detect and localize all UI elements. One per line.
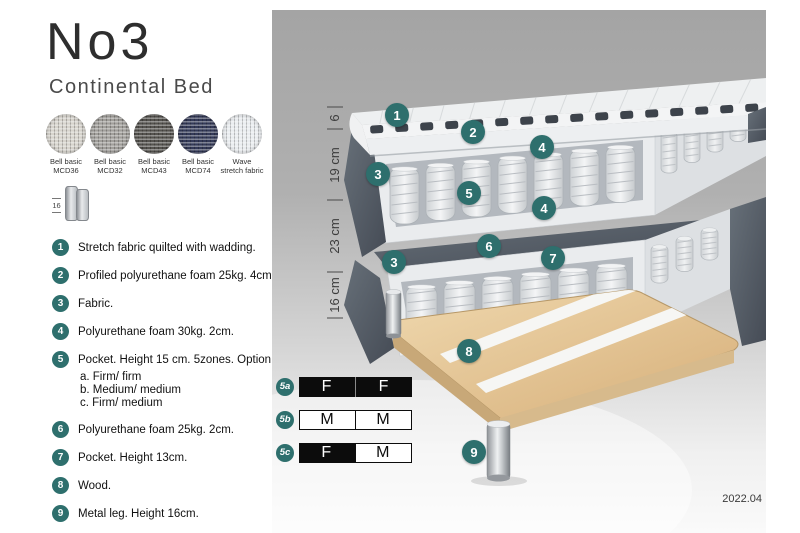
- fabric-swatch-cell: Bell basicMCD43: [132, 114, 176, 175]
- spec-number-badge: 4: [52, 323, 69, 340]
- spec-item-text: Pocket. Height 15 cm. 5zones. Option:: [78, 351, 274, 368]
- firmness-bar: MM: [299, 410, 412, 430]
- leg-dimension-icon: 16: [52, 189, 89, 221]
- spec-item-9: 9Metal leg. Height 16cm.: [52, 505, 290, 522]
- firmness-row-5b: 5bMM: [276, 410, 412, 430]
- spec-list: 1Stretch fabric quilted with wadding.2Pr…: [52, 239, 290, 533]
- firmness-row-5a: 5aFF: [276, 377, 412, 397]
- firmness-cell: M: [356, 410, 412, 430]
- spec-item-text: Fabric.: [78, 295, 113, 312]
- spec-item-8: 8Wood.: [52, 477, 290, 494]
- firmness-bar: FM: [299, 443, 412, 463]
- spec-item-2: 2Profiled polyurethane foam 25kg. 4cm.: [52, 267, 290, 284]
- fabric-swatch-mcd43: [134, 114, 174, 154]
- leg-cylinder-icon: [76, 189, 89, 221]
- fabric-swatch-cell: Bell basicMCD36: [44, 114, 88, 175]
- version-label: 2022.04: [690, 493, 762, 505]
- fabric-swatch-row: Bell basicMCD36Bell basicMCD32Bell basic…: [44, 114, 264, 175]
- spec-number-badge: 2: [52, 267, 69, 284]
- fabric-swatch-mcd74: [178, 114, 218, 154]
- svg-text:16 cm: 16 cm: [327, 277, 342, 312]
- fabric-swatch-mcd36: [46, 114, 86, 154]
- fabric-swatch-cell: Bell basicMCD74: [176, 114, 220, 175]
- callout-8: 8: [457, 339, 481, 363]
- svg-text:6: 6: [327, 114, 342, 121]
- spec-item-4: 4Polyurethane foam 30kg. 2cm.: [52, 323, 290, 340]
- fabric-swatch-label: Wavestretch fabric: [216, 157, 268, 175]
- firmness-badge: 5a: [276, 378, 294, 396]
- metal-leg-left: [386, 290, 401, 339]
- callout-3: 3: [382, 250, 406, 274]
- spec-item-options: a. Firm/ firmb. Medium/ mediumc. Firm/ m…: [80, 371, 290, 410]
- firmness-bar: FF: [299, 377, 412, 397]
- spec-number-badge: 9: [52, 505, 69, 522]
- firmness-cell: F: [299, 443, 355, 463]
- spec-item-text: Pocket. Height 13cm.: [78, 449, 187, 466]
- spec-number-badge: 7: [52, 449, 69, 466]
- firmness-row-5c: 5cFM: [276, 443, 412, 463]
- fabric-swatch-cell: Wavestretch fabric: [220, 114, 264, 175]
- product-title: No3: [46, 12, 153, 72]
- spec-item-text: Stretch fabric quilted with wadding.: [78, 239, 256, 256]
- spec-item-text: Polyurethane foam 25kg. 2cm.: [78, 421, 234, 438]
- spec-item-1: 1Stretch fabric quilted with wadding.: [52, 239, 290, 256]
- callout-4: 4: [532, 196, 556, 220]
- spec-number-badge: 3: [52, 295, 69, 312]
- leg-height-dimension: 16: [52, 196, 61, 215]
- firmness-badge: 5b: [276, 411, 294, 429]
- spec-item-text: Wood.: [78, 477, 111, 494]
- callout-6: 6: [477, 234, 501, 258]
- spec-item-text: Profiled polyurethane foam 25kg. 4cm.: [78, 267, 275, 284]
- fabric-swatch-mcd32: [90, 114, 130, 154]
- spec-item-text: Metal leg. Height 16cm.: [78, 505, 199, 522]
- spec-number-badge: 5: [52, 351, 69, 368]
- spec-item-6: 6Polyurethane foam 25kg. 2cm.: [52, 421, 290, 438]
- product-subtitle: Continental Bed: [49, 76, 214, 99]
- callout-9: 9: [462, 440, 486, 464]
- fabric-swatch-cell: Bell basicMCD32: [88, 114, 132, 175]
- callout-1: 1: [385, 103, 409, 127]
- spec-item-7: 7Pocket. Height 13cm.: [52, 449, 290, 466]
- callout-7: 7: [541, 246, 565, 270]
- svg-text:19 cm: 19 cm: [327, 147, 342, 182]
- spec-number-badge: 8: [52, 477, 69, 494]
- callout-5: 5: [457, 181, 481, 205]
- firmness-cell: M: [355, 443, 413, 463]
- fabric-swatch-stretch-fabric: [222, 114, 262, 154]
- firmness-cell: F: [299, 377, 355, 397]
- callout-4: 4: [530, 135, 554, 159]
- spec-number-badge: 1: [52, 239, 69, 256]
- callout-2: 2: [461, 120, 485, 144]
- spec-item-5: 5Pocket. Height 15 cm. 5zones. Option:: [52, 351, 290, 368]
- spec-item-text: Polyurethane foam 30kg. 2cm.: [78, 323, 234, 340]
- firmness-badge: 5c: [276, 444, 294, 462]
- svg-text:23 cm: 23 cm: [327, 218, 342, 253]
- firmness-cell: F: [355, 377, 412, 397]
- spec-item-3: 3Fabric.: [52, 295, 290, 312]
- callout-3: 3: [366, 162, 390, 186]
- firmness-cell: M: [299, 410, 356, 430]
- spec-number-badge: 6: [52, 421, 69, 438]
